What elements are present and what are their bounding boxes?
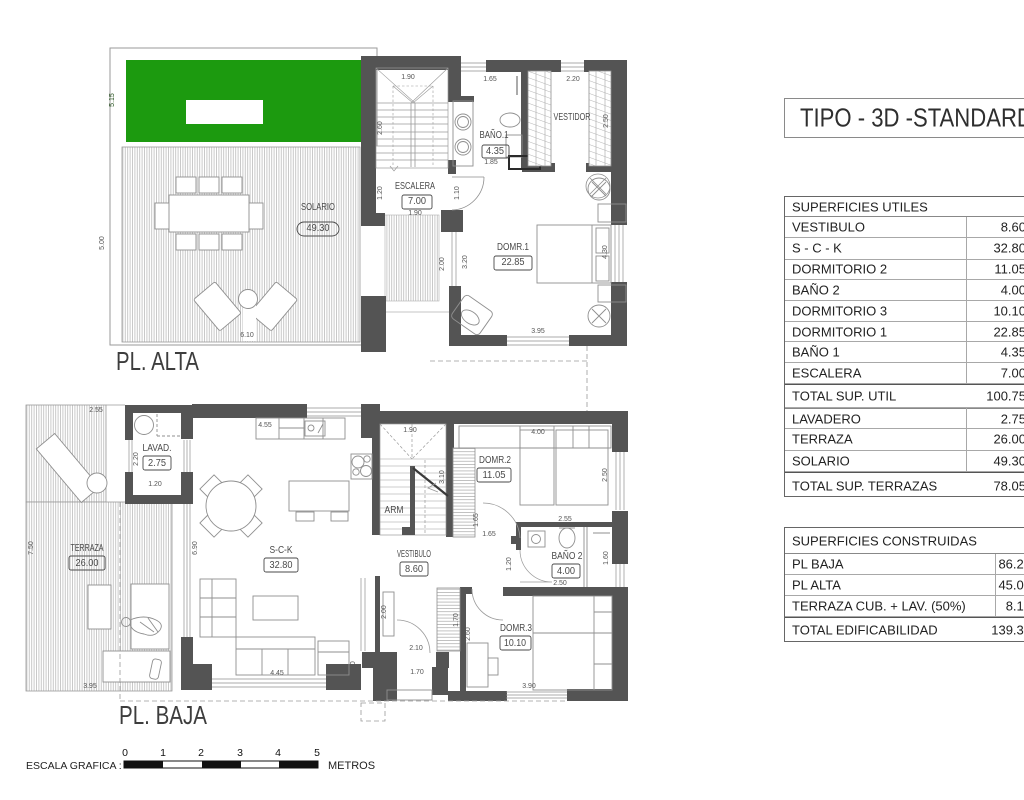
svg-text:3.10: 3.10	[439, 470, 446, 484]
svg-text:1.70: 1.70	[453, 613, 460, 627]
svg-text:0.70: 0.70	[350, 661, 357, 675]
svg-text:PL. ALTA: PL. ALTA	[116, 346, 200, 376]
svg-text:4.45: 4.45	[270, 670, 284, 677]
svg-text:6.90: 6.90	[192, 541, 199, 555]
svg-text:VESTIBULO: VESTIBULO	[397, 548, 431, 560]
svg-text:11.05: 11.05	[483, 470, 506, 481]
svg-text:ESCALA GRAFICA :: ESCALA GRAFICA :	[26, 760, 122, 772]
svg-text:2.20: 2.20	[566, 76, 580, 83]
svg-text:TERRAZA: TERRAZA	[71, 542, 104, 554]
svg-text:4.00: 4.00	[531, 429, 545, 436]
svg-text:1.60: 1.60	[603, 551, 610, 565]
svg-text:ESCALERA: ESCALERA	[395, 180, 435, 192]
svg-text:4.30: 4.30	[602, 245, 609, 259]
svg-text:5.00: 5.00	[99, 236, 106, 250]
svg-text:2.60: 2.60	[377, 121, 384, 135]
svg-text:1.20: 1.20	[506, 557, 513, 571]
svg-text:3.20: 3.20	[462, 255, 469, 269]
svg-text:7.00: 7.00	[408, 196, 426, 207]
svg-text:1.65: 1.65	[482, 531, 496, 538]
svg-text:4: 4	[275, 747, 281, 759]
svg-text:3: 3	[237, 747, 243, 759]
svg-text:2.00: 2.00	[439, 257, 446, 271]
svg-text:4.35: 4.35	[486, 146, 504, 157]
svg-text:3.95: 3.95	[83, 683, 97, 690]
svg-text:3.90: 3.90	[522, 683, 536, 690]
svg-text:LAVAD.: LAVAD.	[143, 442, 172, 454]
svg-text:METROS: METROS	[328, 760, 375, 772]
svg-text:2.10: 2.10	[409, 645, 423, 652]
svg-text:DOMR.2: DOMR.2	[479, 454, 511, 466]
svg-text:2.50: 2.50	[603, 114, 610, 128]
svg-text:2.00: 2.00	[381, 605, 388, 619]
svg-text:DOMR.1: DOMR.1	[497, 241, 529, 253]
svg-text:5: 5	[314, 747, 320, 759]
svg-text:BAÑO.1: BAÑO.1	[480, 128, 509, 141]
svg-text:6.10: 6.10	[240, 332, 254, 339]
svg-text:1.10: 1.10	[454, 186, 461, 200]
svg-text:3.95: 3.95	[531, 328, 545, 335]
svg-text:2.60: 2.60	[465, 627, 472, 641]
svg-text:1.90: 1.90	[403, 427, 417, 434]
svg-text:ARM: ARM	[385, 504, 404, 516]
svg-text:1.65: 1.65	[483, 76, 497, 83]
svg-text:S-C-K: S-C-K	[270, 544, 293, 556]
svg-text:PL. BAJA: PL. BAJA	[119, 700, 208, 730]
svg-text:1.90: 1.90	[401, 74, 415, 81]
svg-text:22.85: 22.85	[502, 257, 525, 268]
svg-text:1.70: 1.70	[410, 669, 424, 676]
svg-text:BAÑO 2: BAÑO 2	[552, 549, 583, 562]
svg-text:2.55: 2.55	[558, 516, 572, 523]
svg-text:2.50: 2.50	[602, 468, 609, 482]
svg-text:VESTIDOR: VESTIDOR	[554, 111, 591, 123]
svg-text:26.00: 26.00	[76, 558, 99, 569]
svg-text:2: 2	[198, 747, 204, 759]
svg-text:2.55: 2.55	[89, 407, 103, 414]
svg-text:2.75: 2.75	[148, 458, 166, 469]
svg-text:1.85: 1.85	[484, 159, 498, 166]
svg-text:7.50: 7.50	[28, 541, 35, 555]
svg-text:1.20: 1.20	[148, 481, 162, 488]
svg-text:2.50: 2.50	[553, 580, 567, 587]
svg-text:1.20: 1.20	[377, 186, 384, 200]
svg-text:2.20: 2.20	[133, 452, 140, 466]
svg-text:8.60: 8.60	[405, 564, 423, 575]
svg-text:4.00: 4.00	[557, 566, 575, 577]
svg-text:0: 0	[122, 747, 128, 759]
svg-text:SOLARIO: SOLARIO	[301, 201, 335, 213]
svg-text:10.10: 10.10	[504, 638, 526, 649]
svg-text:DOMR.3: DOMR.3	[500, 622, 532, 634]
svg-text:1.90: 1.90	[408, 210, 422, 217]
svg-text:4.55: 4.55	[258, 422, 272, 429]
svg-text:1: 1	[160, 747, 166, 759]
svg-text:49.30: 49.30	[307, 223, 330, 234]
svg-text:5.15: 5.15	[109, 93, 116, 107]
svg-text:1.65: 1.65	[473, 513, 480, 527]
svg-text:32.80: 32.80	[270, 560, 293, 571]
